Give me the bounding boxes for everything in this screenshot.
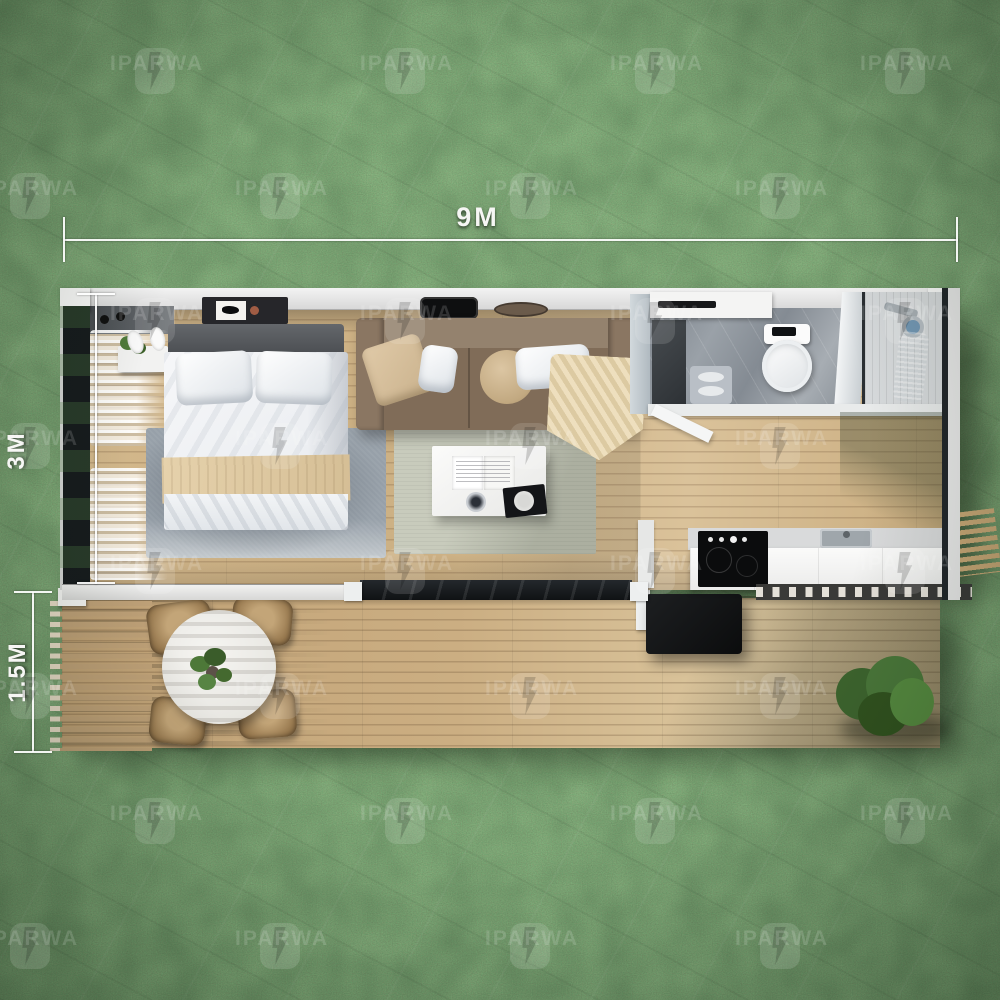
bolt-cutout — [643, 552, 667, 590]
watermark-text: IPARWA — [110, 302, 200, 326]
watermark-bolt-icon — [885, 48, 925, 94]
watermark-text: IPARWA — [860, 802, 950, 826]
watermark-text: IPARWA — [360, 52, 450, 76]
watermark-text: IPARWA — [360, 302, 450, 326]
watermark-text: IPARWA — [485, 427, 575, 451]
watermark-bolt-icon — [885, 548, 925, 594]
watermark-bolt-icon — [635, 798, 675, 844]
dimension-tick — [14, 591, 52, 593]
watermark-bolt-icon — [385, 298, 425, 344]
watermark-bolt-icon — [10, 173, 50, 219]
watermark-bolt-icon — [635, 48, 675, 94]
watermark-text: IPARWA — [610, 302, 700, 326]
watermark-text: IPARWA — [235, 177, 325, 201]
watermark-bolt-icon — [635, 298, 675, 344]
bolt-cutout — [893, 802, 917, 840]
watermark-text: IPARWA — [610, 52, 700, 76]
bolt-cutout — [18, 177, 42, 215]
bolt-cutout — [768, 177, 792, 215]
watermark-text: IPARWA — [485, 677, 575, 701]
watermark-bolt-icon — [260, 673, 300, 719]
watermark-text: IPARWA — [235, 927, 325, 951]
dimension-tick — [63, 217, 65, 262]
bolt-cutout — [268, 427, 292, 465]
dimension-tick — [77, 293, 115, 295]
bolt-cutout — [393, 802, 417, 840]
bolt-cutout — [18, 927, 42, 965]
bolt-cutout — [518, 677, 542, 715]
watermark-bolt-icon — [635, 548, 675, 594]
bolt-cutout — [143, 52, 167, 90]
bolt-cutout — [268, 927, 292, 965]
watermark-bolt-icon — [385, 798, 425, 844]
bolt-cutout — [893, 52, 917, 90]
watermark-text: IPARWA — [235, 427, 325, 451]
watermark-text: IPARWA — [235, 677, 325, 701]
bolt-cutout — [268, 677, 292, 715]
dimension-tick — [14, 751, 52, 753]
container-home-top-view-scene: 9M 3M 1.5M IPARWAIPARWAIPARWAIPARWAIPARW… — [0, 0, 1000, 1000]
watermark-bolt-icon — [510, 923, 550, 969]
dimension-tick — [956, 217, 958, 262]
dimension-tick — [77, 582, 115, 584]
watermark-bolt-icon — [260, 173, 300, 219]
watermark-text: IPARWA — [485, 177, 575, 201]
bolt-cutout — [143, 302, 167, 340]
watermark-bolt-icon — [385, 548, 425, 594]
watermark-text: IPARWA — [610, 552, 700, 576]
watermark-text: IPARWA — [735, 427, 825, 451]
watermark-bolt-icon — [760, 173, 800, 219]
bolt-cutout — [143, 802, 167, 840]
watermark-bolt-icon — [510, 423, 550, 469]
watermark-text: IPARWA — [735, 177, 825, 201]
bolt-cutout — [768, 677, 792, 715]
dimension-line-width — [64, 239, 958, 241]
watermark-text: IPARWA — [0, 927, 75, 951]
watermark-text: IPARWA — [860, 52, 950, 76]
watermark-bolt-icon — [135, 298, 175, 344]
bolt-cutout — [643, 802, 667, 840]
watermark-text: IPARWA — [860, 302, 950, 326]
watermark-bolt-icon — [10, 923, 50, 969]
bolt-cutout — [643, 302, 667, 340]
watermark-text: IPARWA — [110, 52, 200, 76]
bolt-cutout — [393, 552, 417, 590]
bolt-cutout — [893, 302, 917, 340]
watermark-text: IPARWA — [110, 552, 200, 576]
bolt-cutout — [518, 927, 542, 965]
watermark-bolt-icon — [385, 48, 425, 94]
watermark-text: IPARWA — [735, 677, 825, 701]
watermark-text: IPARWA — [360, 802, 450, 826]
watermark-text: IPARWA — [360, 552, 450, 576]
watermark-bolt-icon — [760, 673, 800, 719]
watermark-text: IPARWA — [860, 552, 950, 576]
dimension-label-width: 9M — [408, 202, 548, 233]
dimension-label-deck: 1.5M — [4, 632, 32, 712]
watermark-bolt-icon — [135, 798, 175, 844]
watermark-text: IPARWA — [610, 802, 700, 826]
dimension-line-depth — [95, 294, 97, 584]
bolt-cutout — [893, 552, 917, 590]
dimension-line-deck — [32, 592, 34, 752]
bolt-cutout — [268, 177, 292, 215]
watermark-text: IPARWA — [110, 802, 200, 826]
bolt-cutout — [768, 927, 792, 965]
watermark-bolt-icon — [760, 423, 800, 469]
bolt-cutout — [393, 302, 417, 340]
bolt-cutout — [143, 552, 167, 590]
watermark-bolt-icon — [510, 673, 550, 719]
watermark-bolt-icon — [885, 798, 925, 844]
watermark-layer: IPARWAIPARWAIPARWAIPARWAIPARWAIPARWAIPAR… — [0, 0, 1000, 1000]
watermark-bolt-icon — [135, 48, 175, 94]
watermark-bolt-icon — [885, 298, 925, 344]
watermark-text: IPARWA — [485, 927, 575, 951]
watermark-bolt-icon — [260, 923, 300, 969]
dimension-label-depth: 3M — [3, 415, 31, 485]
bolt-cutout — [393, 52, 417, 90]
bolt-cutout — [518, 427, 542, 465]
bolt-cutout — [768, 427, 792, 465]
watermark-text: IPARWA — [735, 927, 825, 951]
watermark-bolt-icon — [260, 423, 300, 469]
watermark-bolt-icon — [760, 923, 800, 969]
bolt-cutout — [643, 52, 667, 90]
watermark-text: IPARWA — [0, 177, 75, 201]
watermark-bolt-icon — [135, 548, 175, 594]
